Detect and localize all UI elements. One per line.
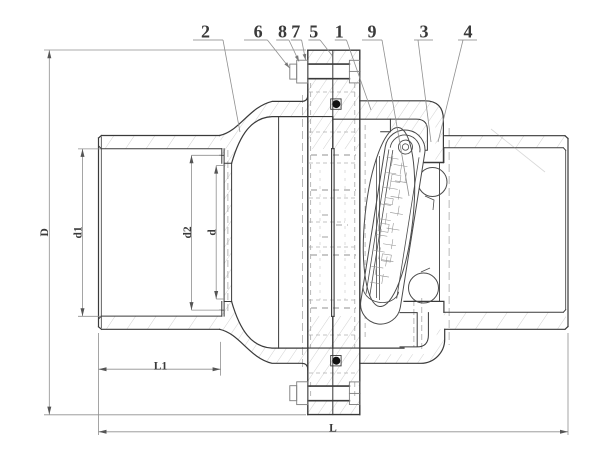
svg-text:d1: d1 xyxy=(72,226,84,238)
svg-text:1: 1 xyxy=(335,22,344,42)
svg-text:9: 9 xyxy=(368,22,377,42)
svg-text:2: 2 xyxy=(201,22,210,42)
svg-text:6: 6 xyxy=(254,22,263,42)
svg-text:8: 8 xyxy=(278,22,287,42)
svg-text:L1: L1 xyxy=(154,361,168,373)
svg-text:d: d xyxy=(207,229,219,236)
svg-text:L: L xyxy=(329,423,337,435)
svg-text:D: D xyxy=(39,228,51,236)
svg-text:d2: d2 xyxy=(182,226,194,238)
svg-text:3: 3 xyxy=(420,22,429,42)
svg-text:4: 4 xyxy=(464,22,473,42)
svg-text:7: 7 xyxy=(291,22,300,42)
svg-text:5: 5 xyxy=(309,22,318,42)
